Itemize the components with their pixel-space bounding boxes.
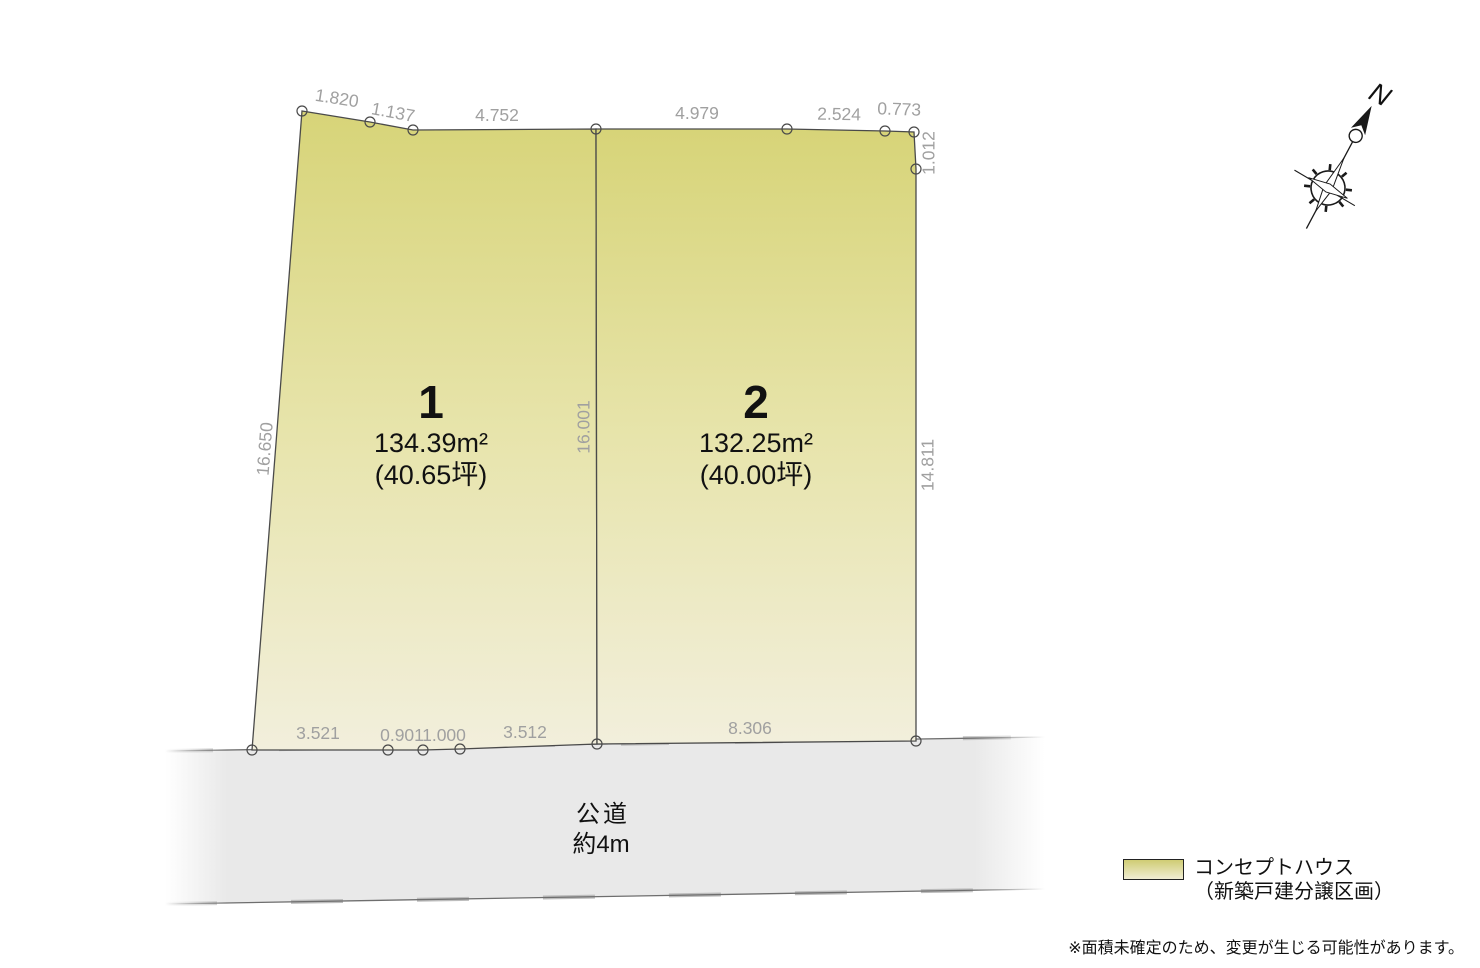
dim-bottom-4: 3.512 — [503, 722, 547, 742]
site-plan-canvas: 公道 約4m 1.820 1.137 — [0, 0, 1480, 968]
lot-2-number: 2 — [743, 376, 769, 428]
dim-bottom-5: 8.306 — [728, 718, 772, 738]
lot-1-tsubo: (40.65坪) — [375, 460, 488, 490]
footnote: ※面積未確定のため、変更が生じる可能性があります。 — [1068, 934, 1464, 958]
road-name-label: 公道 — [576, 801, 630, 828]
lot-1-number: 1 — [418, 376, 444, 428]
compass-star-horizontal — [1306, 174, 1349, 203]
legend-subtitle: （新築戸建分譲区画） — [1194, 881, 1394, 903]
north-compass: N — [1273, 62, 1414, 243]
dim-bottom-1: 3.521 — [296, 723, 340, 743]
dim-bottom-3: 1.000 — [422, 725, 466, 745]
lot-2-tsubo: (40.00坪) — [700, 460, 813, 490]
dim-top-3: 4.752 — [475, 105, 519, 125]
dim-top-5: 2.524 — [817, 104, 861, 125]
dim-top-6: 0.773 — [877, 98, 921, 120]
compass-sight-circle — [1347, 127, 1365, 145]
legend-text: コンセプトハウス （新築戸建分譲区画） — [1194, 856, 1394, 904]
road-band: 公道 約4m — [165, 737, 1045, 904]
lot-1-area: 134.39m² — [374, 428, 488, 458]
dim-center-divider: 16.001 — [574, 400, 594, 454]
dim-top-4: 4.979 — [675, 103, 719, 123]
road-width-label: 約4m — [572, 831, 629, 858]
dim-right-side: 14.811 — [918, 439, 938, 491]
dim-bottom-2: 0.901 — [380, 725, 424, 745]
dim-right-upper: 1.012 — [919, 131, 939, 175]
dim-left-side: 16.650 — [253, 421, 277, 476]
lot-2-area: 132.25m² — [699, 428, 813, 458]
legend: コンセプトハウス （新築戸建分譲区画） — [1123, 856, 1394, 904]
site-plan-svg: 公道 約4m 1.820 1.137 — [0, 0, 1480, 968]
north-label: N — [1364, 77, 1396, 113]
legend-swatch-icon — [1123, 859, 1184, 880]
legend-title: コンセプトハウス — [1194, 857, 1354, 879]
dim-top-1: 1.820 — [314, 85, 361, 112]
dim-top-2: 1.137 — [370, 98, 417, 126]
